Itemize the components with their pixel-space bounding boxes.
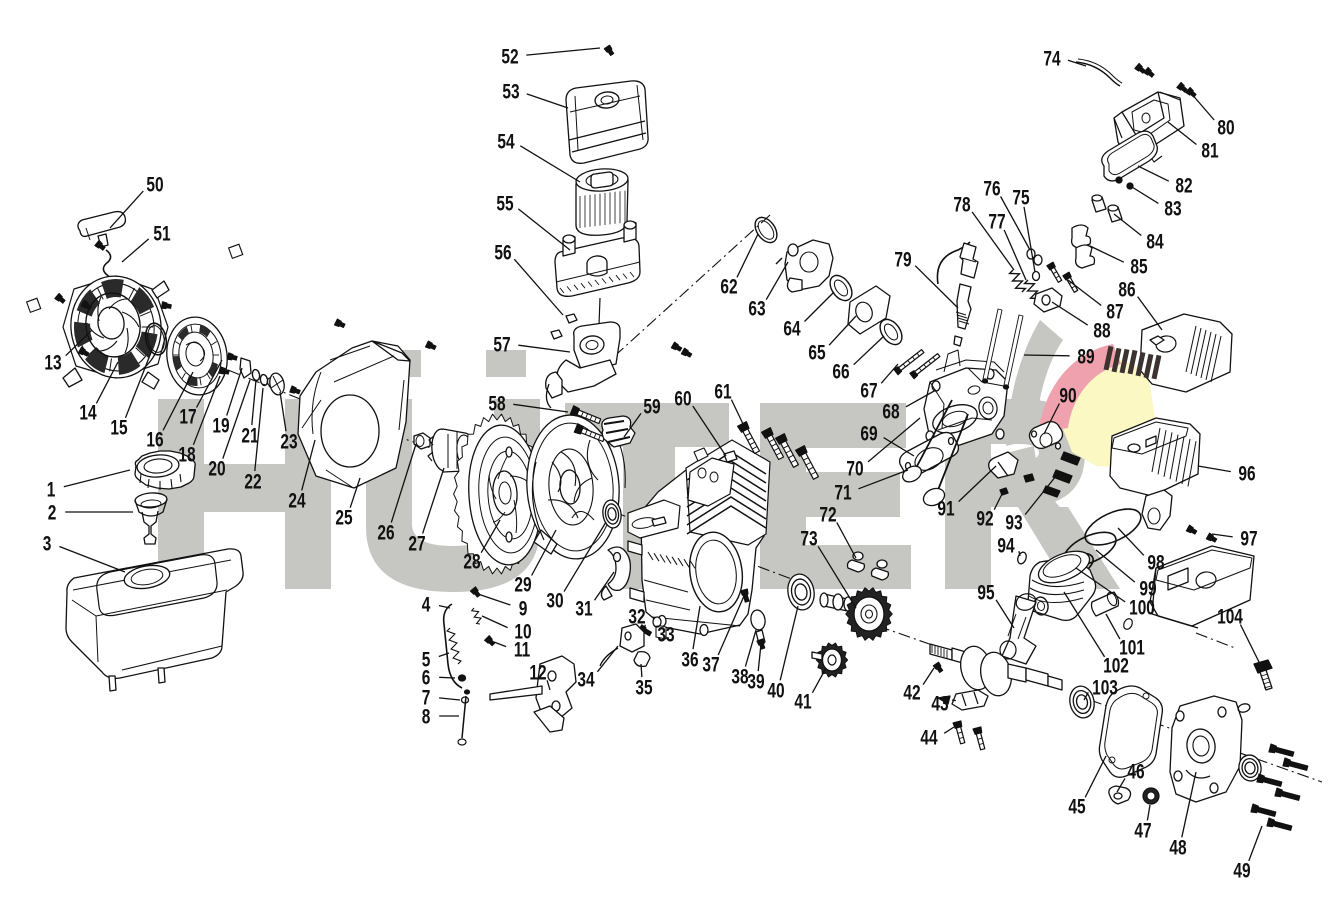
svg-text:20: 20 (208, 456, 225, 480)
svg-text:36: 36 (681, 647, 698, 671)
svg-text:102: 102 (1103, 653, 1129, 677)
svg-text:25: 25 (335, 505, 352, 529)
svg-text:37: 37 (702, 652, 719, 676)
svg-text:100: 100 (1129, 595, 1155, 619)
svg-text:44: 44 (920, 725, 938, 749)
svg-text:58: 58 (488, 391, 505, 415)
svg-text:39: 39 (747, 669, 764, 693)
svg-text:28: 28 (463, 549, 480, 573)
svg-text:26: 26 (377, 520, 394, 544)
svg-text:64: 64 (783, 316, 801, 340)
svg-text:86: 86 (1118, 277, 1135, 301)
svg-text:103: 103 (1092, 675, 1118, 699)
svg-text:1: 1 (47, 477, 56, 501)
svg-text:35: 35 (635, 675, 652, 699)
svg-text:50: 50 (146, 172, 163, 196)
svg-text:47: 47 (1134, 818, 1151, 842)
svg-text:57: 57 (493, 332, 510, 356)
svg-text:23: 23 (280, 429, 297, 453)
svg-text:98: 98 (1147, 550, 1164, 574)
svg-text:80: 80 (1217, 115, 1234, 139)
svg-text:61: 61 (714, 379, 731, 403)
svg-text:75: 75 (1012, 185, 1029, 209)
svg-text:89: 89 (1077, 344, 1094, 368)
svg-text:48: 48 (1169, 835, 1186, 859)
svg-text:4: 4 (422, 592, 431, 616)
svg-text:71: 71 (834, 480, 851, 504)
svg-text:12: 12 (529, 660, 546, 684)
svg-text:30: 30 (546, 588, 563, 612)
svg-text:31: 31 (575, 596, 592, 620)
svg-text:16: 16 (146, 427, 163, 451)
svg-text:33: 33 (657, 622, 674, 646)
svg-text:60: 60 (674, 386, 691, 410)
svg-text:42: 42 (903, 680, 920, 704)
svg-text:78: 78 (953, 192, 970, 216)
svg-text:53: 53 (502, 79, 519, 103)
svg-text:73: 73 (800, 526, 817, 550)
svg-text:72: 72 (819, 502, 836, 526)
svg-text:92: 92 (976, 506, 993, 530)
svg-text:90: 90 (1059, 383, 1076, 407)
svg-text:11: 11 (514, 637, 530, 661)
svg-text:41: 41 (794, 689, 811, 713)
svg-text:56: 56 (494, 240, 511, 264)
svg-text:95: 95 (977, 580, 994, 604)
svg-text:8: 8 (422, 704, 431, 728)
svg-text:65: 65 (808, 340, 825, 364)
svg-text:85: 85 (1130, 254, 1147, 278)
svg-text:97: 97 (1240, 526, 1257, 550)
svg-text:38: 38 (731, 664, 748, 688)
svg-text:18: 18 (178, 442, 195, 466)
svg-text:69: 69 (860, 421, 877, 445)
svg-text:52: 52 (501, 44, 518, 68)
svg-text:55: 55 (496, 191, 513, 215)
svg-text:3: 3 (43, 531, 52, 555)
svg-text:45: 45 (1068, 794, 1085, 818)
svg-text:63: 63 (748, 296, 765, 320)
svg-text:32: 32 (628, 604, 645, 628)
svg-text:82: 82 (1175, 173, 1192, 197)
svg-text:81: 81 (1201, 138, 1218, 162)
svg-text:79: 79 (894, 247, 911, 271)
svg-text:29: 29 (514, 572, 531, 596)
svg-text:59: 59 (643, 394, 660, 418)
svg-text:46: 46 (1127, 759, 1144, 783)
svg-text:96: 96 (1238, 461, 1255, 485)
svg-text:93: 93 (1005, 510, 1022, 534)
svg-text:76: 76 (983, 176, 1000, 200)
svg-text:21: 21 (241, 423, 258, 447)
svg-text:9: 9 (519, 596, 528, 620)
svg-text:17: 17 (179, 404, 196, 428)
svg-text:62: 62 (720, 274, 737, 298)
svg-text:70: 70 (846, 456, 863, 480)
svg-text:24: 24 (288, 488, 306, 512)
svg-text:19: 19 (212, 413, 229, 437)
svg-text:77: 77 (988, 209, 1005, 233)
svg-text:88: 88 (1093, 318, 1110, 342)
svg-text:94: 94 (997, 533, 1015, 557)
svg-text:68: 68 (882, 399, 899, 423)
svg-text:34: 34 (577, 667, 595, 691)
svg-text:74: 74 (1043, 46, 1061, 70)
svg-text:15: 15 (110, 415, 127, 439)
svg-text:54: 54 (497, 129, 515, 153)
svg-text:43: 43 (931, 691, 948, 715)
svg-text:84: 84 (1146, 229, 1164, 253)
svg-text:91: 91 (937, 496, 954, 520)
svg-text:67: 67 (860, 378, 877, 402)
svg-text:27: 27 (408, 531, 425, 555)
svg-text:22: 22 (244, 469, 261, 493)
svg-text:49: 49 (1233, 858, 1250, 882)
svg-text:66: 66 (832, 359, 849, 383)
svg-text:13: 13 (44, 350, 61, 374)
svg-text:40: 40 (767, 678, 784, 702)
svg-text:2: 2 (48, 500, 57, 524)
svg-text:104: 104 (1217, 604, 1243, 628)
svg-text:83: 83 (1164, 196, 1181, 220)
svg-text:51: 51 (153, 221, 170, 245)
svg-text:14: 14 (79, 400, 97, 424)
